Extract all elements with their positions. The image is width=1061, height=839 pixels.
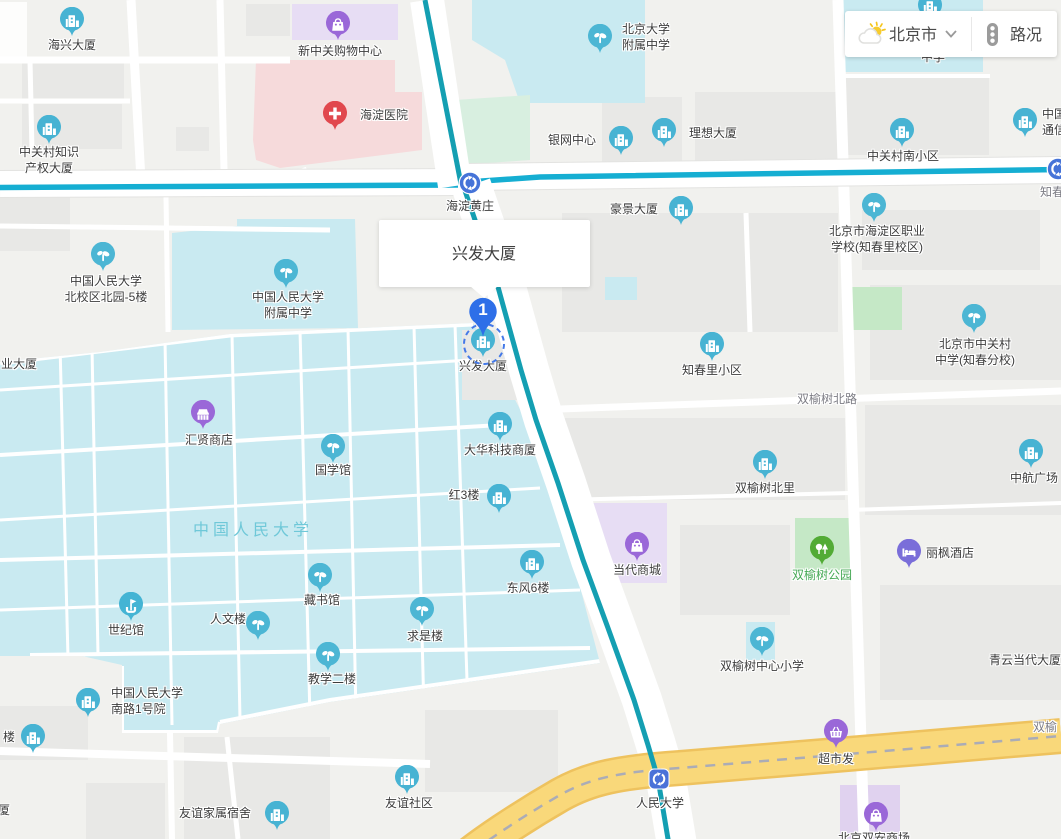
svg-text:1: 1 [478,300,487,319]
